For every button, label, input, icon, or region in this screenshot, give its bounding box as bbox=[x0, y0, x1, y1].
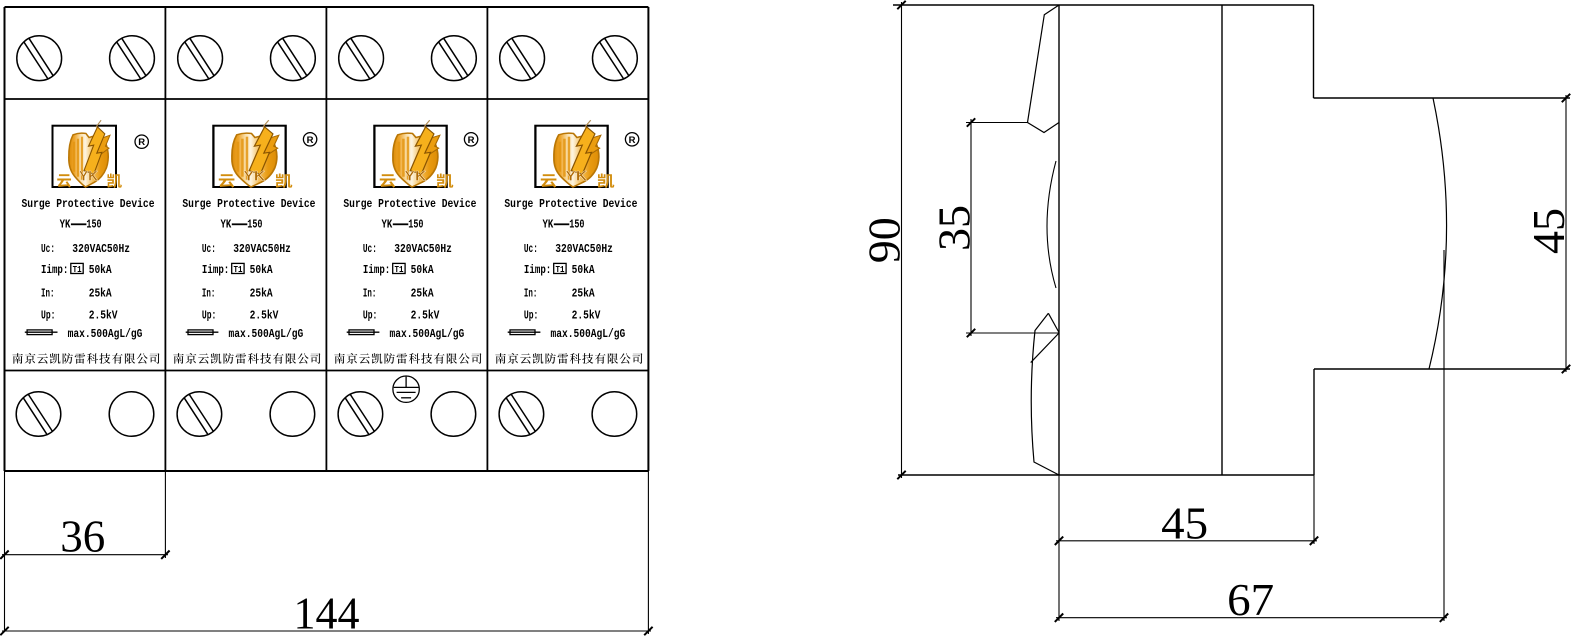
svg-text:Iimp:: Iimp: bbox=[524, 263, 551, 277]
svg-text:67: 67 bbox=[1227, 574, 1274, 625]
svg-text:R: R bbox=[307, 135, 314, 146]
svg-text:max.500AgL/gG: max.500AgL/gG bbox=[551, 327, 626, 341]
svg-text:In:: In: bbox=[524, 287, 538, 301]
svg-text:YK: YK bbox=[543, 218, 554, 232]
svg-text:In:: In: bbox=[363, 287, 377, 301]
svg-text:144: 144 bbox=[294, 588, 360, 639]
svg-text:max.500AgL/gG: max.500AgL/gG bbox=[390, 327, 465, 341]
svg-text:T1: T1 bbox=[395, 264, 404, 275]
svg-text:45: 45 bbox=[1161, 497, 1208, 548]
svg-text:50kA: 50kA bbox=[572, 263, 596, 277]
svg-text:50kA: 50kA bbox=[411, 263, 435, 277]
svg-text:Uc:: Uc: bbox=[524, 242, 538, 256]
svg-text:25kA: 25kA bbox=[89, 287, 113, 301]
svg-text:Up:: Up: bbox=[202, 308, 217, 322]
svg-text:In:: In: bbox=[41, 287, 55, 301]
svg-text:Uc:: Uc: bbox=[363, 242, 377, 256]
svg-text:Surge Protective Device: Surge Protective Device bbox=[343, 197, 476, 211]
svg-text:50kA: 50kA bbox=[89, 263, 113, 277]
svg-text:90: 90 bbox=[859, 217, 910, 263]
svg-text:2.5kV: 2.5kV bbox=[89, 308, 118, 322]
svg-text:YK: YK bbox=[244, 169, 266, 184]
svg-text:45: 45 bbox=[1523, 208, 1574, 254]
svg-text:Uc:: Uc: bbox=[202, 242, 216, 256]
svg-text:In:: In: bbox=[202, 287, 216, 301]
svg-text:max.500AgL/gG: max.500AgL/gG bbox=[229, 327, 304, 341]
svg-text:Iimp:: Iimp: bbox=[41, 263, 68, 277]
svg-text:150: 150 bbox=[247, 218, 262, 232]
svg-text:Iimp:: Iimp: bbox=[202, 263, 229, 277]
svg-text:25kA: 25kA bbox=[250, 287, 274, 301]
svg-text:320VAC50Hz: 320VAC50Hz bbox=[233, 242, 291, 256]
svg-text:Up:: Up: bbox=[41, 308, 56, 322]
svg-text:Up:: Up: bbox=[363, 308, 378, 322]
svg-text:Iimp:: Iimp: bbox=[363, 263, 390, 277]
svg-text:T1: T1 bbox=[556, 264, 565, 275]
svg-text:150: 150 bbox=[86, 218, 101, 232]
svg-text:Uc:: Uc: bbox=[41, 242, 55, 256]
svg-text:max.500AgL/gG: max.500AgL/gG bbox=[68, 327, 143, 341]
svg-text:T1: T1 bbox=[234, 264, 243, 275]
svg-text:320VAC50Hz: 320VAC50Hz bbox=[72, 242, 130, 256]
svg-text:150: 150 bbox=[569, 218, 584, 232]
svg-text:Up:: Up: bbox=[524, 308, 539, 322]
svg-text:35: 35 bbox=[929, 205, 980, 251]
svg-text:Surge Protective Device: Surge Protective Device bbox=[182, 197, 315, 211]
svg-text:YK: YK bbox=[382, 218, 393, 232]
svg-text:R: R bbox=[629, 135, 636, 146]
svg-text:50kA: 50kA bbox=[250, 263, 274, 277]
svg-text:320VAC50Hz: 320VAC50Hz bbox=[394, 242, 452, 256]
svg-text:320VAC50Hz: 320VAC50Hz bbox=[555, 242, 613, 256]
svg-text:YK: YK bbox=[221, 218, 232, 232]
svg-text:25kA: 25kA bbox=[572, 287, 596, 301]
svg-text:YK: YK bbox=[566, 169, 588, 184]
svg-text:25kA: 25kA bbox=[411, 287, 435, 301]
svg-text:2.5kV: 2.5kV bbox=[250, 308, 279, 322]
svg-text:Surge Protective Device: Surge Protective Device bbox=[22, 197, 155, 211]
svg-text:36: 36 bbox=[60, 511, 105, 562]
svg-text:R: R bbox=[468, 135, 475, 146]
svg-text:R: R bbox=[138, 137, 145, 148]
svg-text:Surge Protective Device: Surge Protective Device bbox=[504, 197, 637, 211]
svg-text:YK: YK bbox=[405, 169, 427, 184]
svg-text:2.5kV: 2.5kV bbox=[411, 308, 440, 322]
svg-text:YK: YK bbox=[79, 169, 98, 184]
svg-text:YK: YK bbox=[60, 218, 71, 232]
svg-text:T1: T1 bbox=[73, 264, 82, 275]
svg-text:150: 150 bbox=[408, 218, 423, 232]
svg-text:2.5kV: 2.5kV bbox=[572, 308, 601, 322]
